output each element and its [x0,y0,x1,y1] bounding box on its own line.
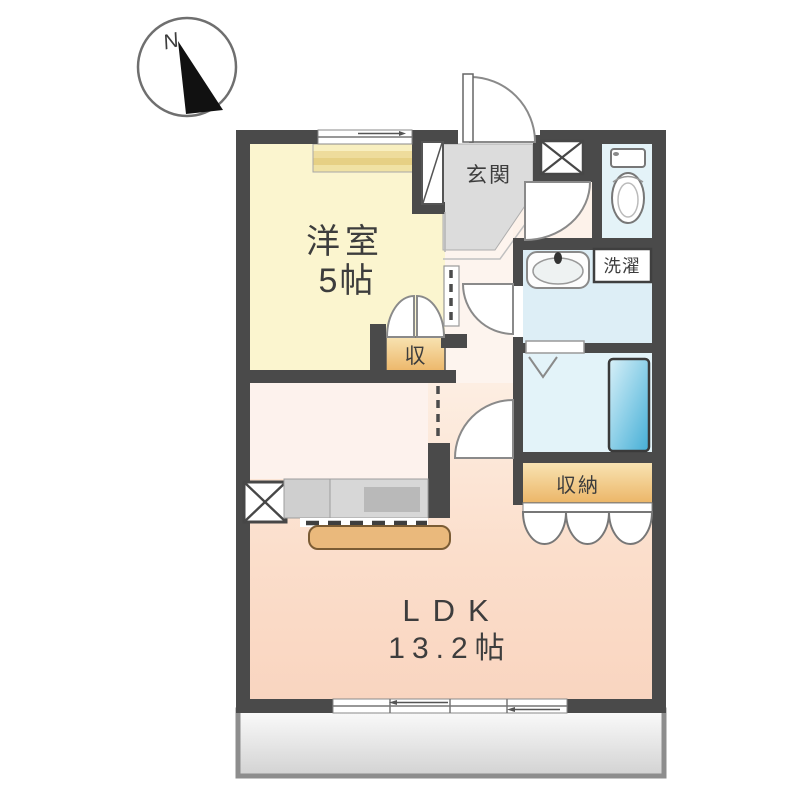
bathtub [609,359,649,451]
wall-left [236,130,250,713]
kitchen-counter-top [309,526,450,549]
laundry-box: 洗濯 [594,249,651,282]
storage-accordion-doors [523,503,652,544]
western-room-window [318,130,412,144]
wall-kitchen-stub [428,443,450,518]
bay-window-counter [313,144,413,172]
floor-plan-svg: 洗濯 [0,0,800,800]
toilet-icon [611,149,645,223]
washroom-door-opening [513,286,523,337]
ldk-sliding-window [333,699,567,713]
bathroom-door-leaf [526,341,584,353]
western-room-size: 5帖 [319,262,376,300]
wall-right [652,130,666,713]
closet-label: 収 [405,345,426,368]
western-room-name: 洋室 [306,223,384,261]
wall-closet-left [370,324,386,383]
wall-hall-wash-upper [513,250,523,286]
washbasin-icon [527,252,589,288]
pipe-space-top-icon [541,141,583,174]
western-room-door [422,142,443,204]
laundry-label: 洗濯 [604,256,641,276]
kitchen-sink [364,487,420,512]
storage-label: 収納 [556,474,600,497]
entrance-label: 玄関 [466,164,512,187]
compass: N [138,18,236,116]
ldk-size: 13.2帖 [388,632,511,665]
pipe-space-kitchen-icon [244,482,286,522]
wall-bottom-right [567,699,666,713]
wall-room-divider [236,370,456,383]
floor-plan-page: 洗濯 [0,0,800,800]
balcony [238,710,664,776]
wall-toilet-left [592,130,602,238]
wall-bath-storage [513,452,652,463]
kitchen-nook-floor [250,383,428,479]
entrance-door-leaf [463,74,473,142]
wall-hall-wash-lower [513,337,523,505]
kitchen-counter [284,479,450,549]
ldk-name: LDK [402,593,501,628]
entrance-door-arc [470,77,535,142]
wall-bottom-left [236,699,333,713]
